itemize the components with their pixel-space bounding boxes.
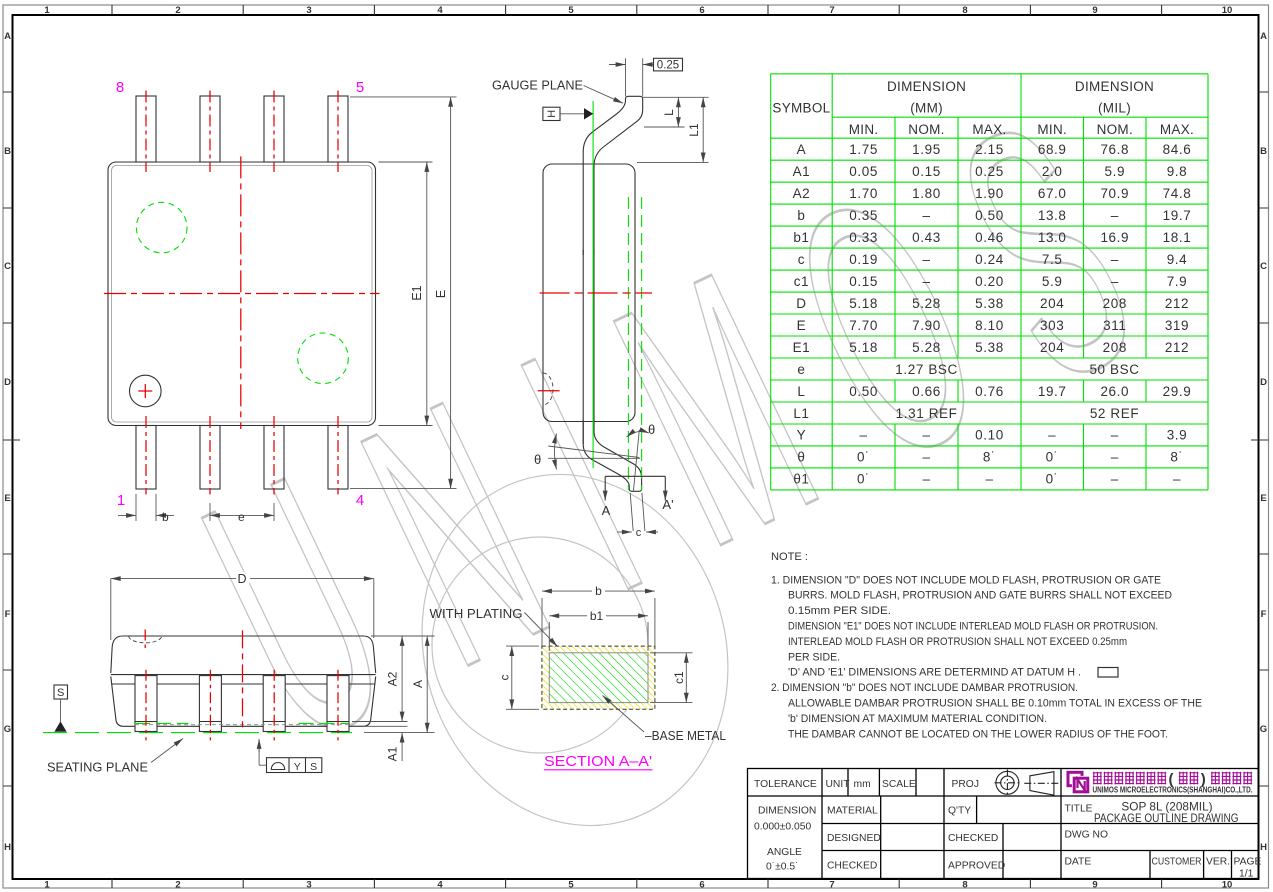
svg-text:L: L: [797, 384, 805, 399]
svg-text:E: E: [434, 290, 448, 298]
svg-text:–: –: [922, 208, 930, 223]
svg-text:WITH PLATING: WITH PLATING: [430, 606, 523, 621]
svg-text:8˙: 8˙: [983, 450, 996, 465]
svg-text:A1: A1: [386, 746, 400, 761]
svg-text:L1: L1: [687, 123, 701, 137]
svg-text:–: –: [922, 428, 930, 443]
svg-text:TITLE: TITLE: [1065, 804, 1093, 815]
svg-text:b: b: [595, 584, 602, 598]
svg-text:3.9: 3.9: [1167, 428, 1188, 443]
svg-text:52 REF: 52 REF: [1090, 406, 1139, 421]
svg-text:Q'TY: Q'TY: [948, 806, 971, 817]
svg-text:–: –: [860, 428, 868, 443]
svg-text:5.18: 5.18: [849, 296, 878, 311]
svg-text:13.8: 13.8: [1038, 208, 1067, 223]
svg-text:4: 4: [356, 492, 364, 509]
svg-text:VER.: VER.: [1206, 857, 1230, 868]
svg-text:0.43: 0.43: [912, 230, 941, 245]
svg-text:4: 4: [437, 5, 443, 16]
svg-text:13.0: 13.0: [1038, 230, 1067, 245]
svg-text:7.9: 7.9: [1167, 274, 1188, 289]
svg-text:C: C: [4, 261, 11, 272]
svg-text:'b' DIMENSION AT MAXIMUM MATER: 'b' DIMENSION AT MAXIMUM MATERIAL CONDIT…: [788, 713, 1047, 725]
svg-text:0.20: 0.20: [975, 274, 1004, 289]
svg-text:10: 10: [1222, 880, 1233, 891]
svg-text:SYMBOL: SYMBOL: [772, 101, 830, 116]
svg-text:6: 6: [699, 880, 704, 891]
svg-text:E: E: [1260, 493, 1266, 504]
svg-text:–: –: [922, 450, 930, 465]
svg-text:0.35: 0.35: [849, 208, 878, 223]
svg-text:C: C: [1260, 261, 1267, 272]
svg-text:A2: A2: [386, 671, 400, 686]
svg-text:DIMENSION: DIMENSION: [758, 806, 816, 817]
svg-text:c1: c1: [794, 274, 809, 289]
svg-text:–: –: [1111, 274, 1119, 289]
svg-text:MIN.: MIN.: [849, 122, 879, 137]
svg-text:0.15: 0.15: [912, 164, 941, 179]
svg-text:1: 1: [117, 492, 125, 509]
svg-text:2. DIMENSION "b" DOES NOT INCL: 2. DIMENSION "b" DOES NOT INCLUDE DAMBAR…: [771, 682, 1078, 694]
svg-text:G: G: [4, 724, 11, 735]
svg-text:–: –: [1048, 428, 1056, 443]
svg-text:(MIL): (MIL): [1098, 101, 1131, 116]
svg-text:F: F: [1261, 609, 1267, 620]
svg-text:5: 5: [568, 880, 574, 891]
svg-text:84.6: 84.6: [1163, 142, 1192, 157]
svg-text:19.7: 19.7: [1038, 384, 1067, 399]
svg-text:L: L: [662, 109, 676, 116]
svg-text:5.38: 5.38: [975, 340, 1004, 355]
svg-text:NOM.: NOM.: [908, 122, 944, 137]
svg-text:'D' AND 'E1' DIMENSIONS ARE DE: 'D' AND 'E1' DIMENSIONS ARE DETERMIND AT…: [788, 667, 1081, 679]
svg-text:8: 8: [962, 880, 967, 891]
svg-text:CHECKED: CHECKED: [948, 833, 998, 844]
svg-text:b: b: [797, 208, 805, 223]
svg-text:CUSTOMER: CUSTOMER: [1152, 857, 1202, 868]
svg-text:0.15mm PER SIDE.: 0.15mm PER SIDE.: [788, 605, 891, 617]
svg-text:1.31 REF: 1.31 REF: [896, 406, 958, 421]
svg-text:b1: b1: [793, 230, 809, 245]
svg-text:70.9: 70.9: [1100, 186, 1129, 201]
svg-text:0.25: 0.25: [657, 60, 679, 72]
svg-text:PROJ: PROJ: [952, 779, 979, 790]
svg-text:Y: Y: [797, 428, 807, 443]
svg-text:0.000±0.050: 0.000±0.050: [754, 822, 811, 833]
svg-text:1.95: 1.95: [912, 142, 941, 157]
svg-text:9: 9: [1092, 880, 1097, 891]
svg-text:H: H: [1260, 842, 1267, 853]
svg-text:D: D: [796, 296, 806, 311]
svg-text:NOM.: NOM.: [1097, 122, 1133, 137]
svg-text:A: A: [4, 31, 11, 42]
svg-text:204: 204: [1040, 340, 1064, 355]
svg-text:5: 5: [568, 5, 574, 16]
svg-text:θ: θ: [534, 452, 541, 467]
svg-text:–: –: [922, 252, 930, 267]
svg-text:b: b: [162, 510, 169, 524]
svg-text:c1: c1: [672, 671, 686, 684]
svg-text:A: A: [797, 142, 807, 157]
svg-text:311: 311: [1103, 318, 1126, 333]
svg-text:–: –: [922, 274, 930, 289]
svg-text:67.0: 67.0: [1038, 186, 1067, 201]
svg-text:0˙±0.5˙: 0˙±0.5˙: [766, 862, 799, 873]
svg-text:9.8: 9.8: [1167, 164, 1188, 179]
svg-text:1: 1: [44, 880, 50, 891]
svg-text:5.18: 5.18: [849, 340, 878, 355]
svg-text:G: G: [1260, 724, 1267, 735]
svg-text:68.9: 68.9: [1038, 142, 1067, 157]
svg-text:SECTION A–A': SECTION A–A': [544, 753, 652, 770]
svg-text:50 BSC: 50 BSC: [1089, 362, 1139, 377]
svg-text:212: 212: [1165, 340, 1189, 355]
svg-text:–: –: [985, 472, 993, 487]
svg-text:L1: L1: [793, 406, 809, 421]
svg-text:0.66: 0.66: [912, 384, 941, 399]
svg-text:F: F: [5, 609, 11, 620]
svg-text:204: 204: [1040, 296, 1064, 311]
svg-text:UNIT: UNIT: [826, 779, 851, 790]
svg-text:4: 4: [437, 880, 443, 891]
svg-text:MAX.: MAX.: [972, 122, 1006, 137]
svg-text:9: 9: [1092, 5, 1097, 16]
svg-text:–: –: [1111, 472, 1119, 487]
svg-text:0˙: 0˙: [857, 472, 870, 487]
svg-text:D: D: [237, 572, 246, 586]
svg-text:5.38: 5.38: [975, 296, 1004, 311]
svg-text:0˙: 0˙: [857, 450, 870, 465]
svg-text:CHECKED: CHECKED: [827, 861, 877, 872]
svg-text:2: 2: [175, 880, 180, 891]
svg-text:212: 212: [1165, 296, 1189, 311]
svg-text:6: 6: [699, 5, 704, 16]
svg-text:PACKAGE OUTLINE DRAWING: PACKAGE OUTLINE DRAWING: [1094, 811, 1239, 825]
svg-text:2.0: 2.0: [1042, 164, 1063, 179]
svg-text:0.25: 0.25: [975, 164, 1004, 179]
svg-text:0.19: 0.19: [849, 252, 878, 267]
svg-text:19.7: 19.7: [1163, 208, 1192, 223]
svg-text:–BASE METAL: –BASE METAL: [645, 728, 726, 743]
svg-text:8˙: 8˙: [1170, 450, 1183, 465]
svg-text:3: 3: [306, 880, 311, 891]
svg-text:INTERLEAD MOLD FLASH OR PROTRU: INTERLEAD MOLD FLASH OR PROTRUSION SHALL…: [788, 636, 1127, 648]
svg-text:–: –: [1111, 428, 1119, 443]
svg-text:1.75: 1.75: [849, 142, 878, 157]
svg-text:1/1: 1/1: [1239, 869, 1254, 880]
svg-text:7: 7: [829, 880, 834, 891]
svg-text:TOLERANCE: TOLERANCE: [754, 779, 817, 790]
svg-text:0.33: 0.33: [849, 230, 878, 245]
svg-text:7: 7: [829, 5, 834, 16]
svg-text:MATERIAL: MATERIAL: [827, 806, 878, 817]
svg-text:UNIMOS MICROELECTRONICS(SHANGH: UNIMOS MICROELECTRONICS(SHANGHAI)CO.,LTD…: [1093, 786, 1253, 795]
svg-text:5.28: 5.28: [912, 296, 941, 311]
svg-text:E1: E1: [410, 285, 424, 300]
svg-text:10: 10: [1222, 5, 1233, 16]
svg-text:APPROVED: APPROVED: [948, 861, 1005, 872]
svg-text:8: 8: [116, 79, 124, 96]
svg-text:mm: mm: [854, 779, 871, 790]
svg-text:DIMENSION "E1" DOES NOT INCLUD: DIMENSION "E1" DOES NOT INCLUDE INTERLEA…: [788, 621, 1158, 633]
svg-text:26.0: 26.0: [1100, 384, 1129, 399]
svg-text:74.8: 74.8: [1163, 186, 1192, 201]
svg-text:θ1: θ1: [793, 472, 809, 487]
svg-text:E: E: [797, 318, 807, 333]
svg-text:DWG NO: DWG NO: [1065, 830, 1108, 841]
svg-text:0.76: 0.76: [975, 384, 1004, 399]
svg-text:MIN.: MIN.: [1037, 122, 1067, 137]
svg-text:E1: E1: [793, 340, 811, 355]
svg-text:1.80: 1.80: [912, 186, 941, 201]
svg-text:208: 208: [1103, 340, 1127, 355]
svg-text:8: 8: [962, 5, 967, 16]
svg-text:DATE: DATE: [1065, 857, 1092, 868]
svg-text:–: –: [1111, 450, 1119, 465]
svg-text:1.70: 1.70: [849, 186, 878, 201]
svg-text:PER SIDE.: PER SIDE.: [788, 651, 840, 663]
svg-text:BURRS. MOLD FLASH, PROTRUSION: BURRS. MOLD FLASH, PROTRUSION AND GATE B…: [788, 590, 1172, 602]
svg-text:PAGE: PAGE: [1234, 857, 1262, 868]
svg-text:GAUGE PLANE: GAUGE PLANE: [492, 78, 583, 93]
svg-text:NOTE :: NOTE :: [771, 551, 808, 563]
svg-text:S: S: [310, 761, 317, 773]
svg-text:e: e: [797, 362, 805, 377]
svg-text:DIMENSION: DIMENSION: [887, 79, 966, 94]
svg-text:5: 5: [356, 79, 364, 96]
svg-text:ALLOWABLE DAMBAR PROTRUSION SH: ALLOWABLE DAMBAR PROTRUSION SHALL BE 0.1…: [788, 698, 1202, 710]
svg-text:A2: A2: [793, 186, 811, 201]
svg-text:c: c: [798, 252, 805, 267]
svg-text:DIMENSION: DIMENSION: [1075, 79, 1154, 94]
svg-text:H: H: [546, 110, 558, 118]
svg-text:7.70: 7.70: [849, 318, 878, 333]
svg-text:ANGLE: ANGLE: [767, 847, 802, 858]
svg-text:SCALE: SCALE: [882, 779, 916, 790]
svg-text:MAX.: MAX.: [1160, 122, 1194, 137]
svg-text:0.50: 0.50: [849, 384, 878, 399]
svg-text:0˙: 0˙: [1046, 472, 1059, 487]
svg-text:θ: θ: [797, 450, 805, 465]
svg-text:A: A: [411, 680, 425, 688]
svg-text:0.46: 0.46: [975, 230, 1004, 245]
svg-text:16.9: 16.9: [1100, 230, 1129, 245]
svg-text:A: A: [1260, 31, 1267, 42]
svg-text:0.05: 0.05: [849, 164, 878, 179]
svg-text:3: 3: [306, 5, 311, 16]
svg-text:–: –: [1111, 208, 1119, 223]
svg-text:–: –: [922, 472, 930, 487]
svg-text:c: c: [636, 527, 642, 539]
svg-text:76.8: 76.8: [1100, 142, 1129, 157]
svg-text:A': A': [662, 497, 673, 512]
svg-text:DESIGNED: DESIGNED: [827, 833, 881, 844]
svg-text:SEATING PLANE: SEATING PLANE: [47, 760, 148, 775]
svg-text:c: c: [497, 675, 511, 681]
svg-text:H: H: [4, 842, 11, 853]
svg-text:–: –: [1111, 252, 1119, 267]
svg-text:319: 319: [1165, 318, 1189, 333]
svg-text:18.1: 18.1: [1163, 230, 1192, 245]
svg-text:A: A: [602, 503, 611, 518]
svg-text:0.24: 0.24: [975, 252, 1004, 267]
svg-text:Y: Y: [294, 761, 301, 773]
svg-text:B: B: [1260, 146, 1267, 157]
svg-text:B: B: [4, 146, 11, 157]
svg-text:5.9: 5.9: [1105, 164, 1126, 179]
svg-text:θ: θ: [648, 422, 655, 437]
svg-text:7.5: 7.5: [1042, 252, 1063, 267]
svg-text:8.10: 8.10: [975, 318, 1004, 333]
svg-text:0.50: 0.50: [975, 208, 1004, 223]
svg-text:(MM): (MM): [910, 101, 943, 116]
svg-text:1.27 BSC: 1.27 BSC: [895, 362, 958, 377]
svg-text:e: e: [238, 510, 245, 524]
svg-text:29.9: 29.9: [1163, 384, 1192, 399]
svg-text:S: S: [57, 687, 64, 699]
svg-text:A1: A1: [793, 164, 811, 179]
svg-text:D: D: [4, 377, 11, 388]
svg-text:303: 303: [1040, 318, 1064, 333]
svg-text:5.28: 5.28: [912, 340, 941, 355]
svg-text:2: 2: [175, 5, 180, 16]
svg-text:9.4: 9.4: [1167, 252, 1188, 267]
svg-text:5.9: 5.9: [1042, 274, 1063, 289]
svg-text:2.15: 2.15: [975, 142, 1004, 157]
svg-text:7.90: 7.90: [912, 318, 941, 333]
svg-text:1.90: 1.90: [975, 186, 1004, 201]
svg-text:0.10: 0.10: [975, 428, 1004, 443]
svg-text:0˙: 0˙: [1046, 450, 1059, 465]
svg-text:E: E: [4, 493, 10, 504]
svg-text:D: D: [1260, 377, 1267, 388]
svg-text:0.15: 0.15: [849, 274, 878, 289]
svg-text:1. DIMENSION "D" DOES NOT INCL: 1. DIMENSION "D" DOES NOT INCLUDE MOLD F…: [771, 574, 1161, 586]
svg-text:–: –: [1173, 472, 1181, 487]
svg-text:THE DAMBAR CANNOT BE LOCATED O: THE DAMBAR CANNOT BE LOCATED ON THE LOWE…: [788, 728, 1168, 740]
svg-text:b1: b1: [590, 609, 604, 623]
svg-text:1: 1: [44, 5, 50, 16]
svg-text:208: 208: [1103, 296, 1127, 311]
